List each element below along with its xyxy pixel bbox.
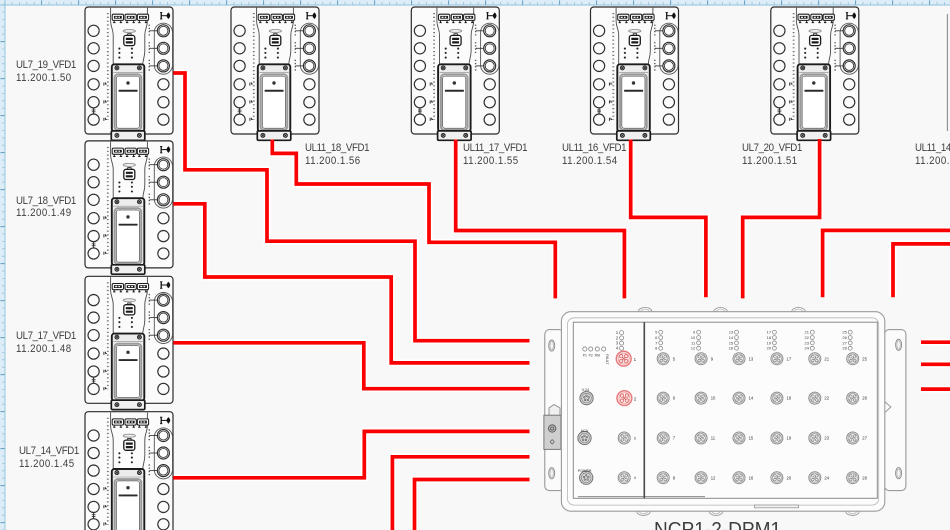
svg-text:21: 21 — [824, 356, 829, 361]
svg-text:27: 27 — [842, 340, 847, 345]
svg-text:21: 21 — [804, 330, 809, 335]
svg-text:22: 22 — [824, 396, 829, 401]
svg-text:13: 13 — [729, 330, 734, 335]
svg-text:POWER: POWER — [578, 469, 592, 473]
svg-text:4: 4 — [634, 476, 636, 480]
svg-text:10: 10 — [691, 335, 696, 340]
svg-text:27: 27 — [862, 436, 867, 441]
svg-text:19: 19 — [787, 436, 792, 441]
svg-text:28: 28 — [862, 475, 867, 480]
svg-text:18: 18 — [787, 396, 792, 401]
svg-text:26: 26 — [862, 396, 867, 401]
svg-text:16: 16 — [749, 475, 754, 480]
svg-text:14: 14 — [729, 335, 734, 340]
svg-text:20: 20 — [787, 475, 792, 480]
svg-text:14: 14 — [749, 396, 754, 401]
svg-text:P2: P2 — [589, 354, 593, 358]
svg-text:ACA: ACA — [581, 429, 589, 433]
svg-text:17: 17 — [787, 356, 792, 361]
svg-text:23: 23 — [824, 436, 829, 441]
svg-text:15: 15 — [729, 340, 734, 345]
svg-text:17: 17 — [767, 330, 772, 335]
svg-text:12: 12 — [711, 475, 716, 480]
svg-text:26: 26 — [842, 335, 847, 340]
svg-text:19: 19 — [767, 340, 772, 345]
svg-text:10: 10 — [711, 396, 716, 401]
svg-text:22: 22 — [804, 335, 809, 340]
svg-text:24: 24 — [824, 475, 829, 480]
svg-text:15: 15 — [749, 436, 754, 441]
svg-text:RM: RM — [595, 354, 600, 358]
svg-text:V.24: V.24 — [582, 388, 589, 392]
svg-text:12: 12 — [691, 346, 696, 351]
svg-text:25: 25 — [862, 356, 867, 361]
svg-text:20: 20 — [767, 346, 772, 351]
svg-text:18: 18 — [767, 335, 772, 340]
svg-text:16: 16 — [729, 346, 734, 351]
svg-text:FAULT: FAULT — [605, 354, 609, 364]
svg-text:11: 11 — [711, 436, 716, 441]
svg-text:23: 23 — [804, 340, 809, 345]
svg-text:P1: P1 — [583, 354, 587, 358]
svg-text:25: 25 — [842, 330, 847, 335]
svg-text:28: 28 — [842, 346, 847, 351]
svg-text:24: 24 — [804, 346, 809, 351]
svg-text:13: 13 — [749, 356, 754, 361]
svg-text:3: 3 — [634, 437, 636, 441]
